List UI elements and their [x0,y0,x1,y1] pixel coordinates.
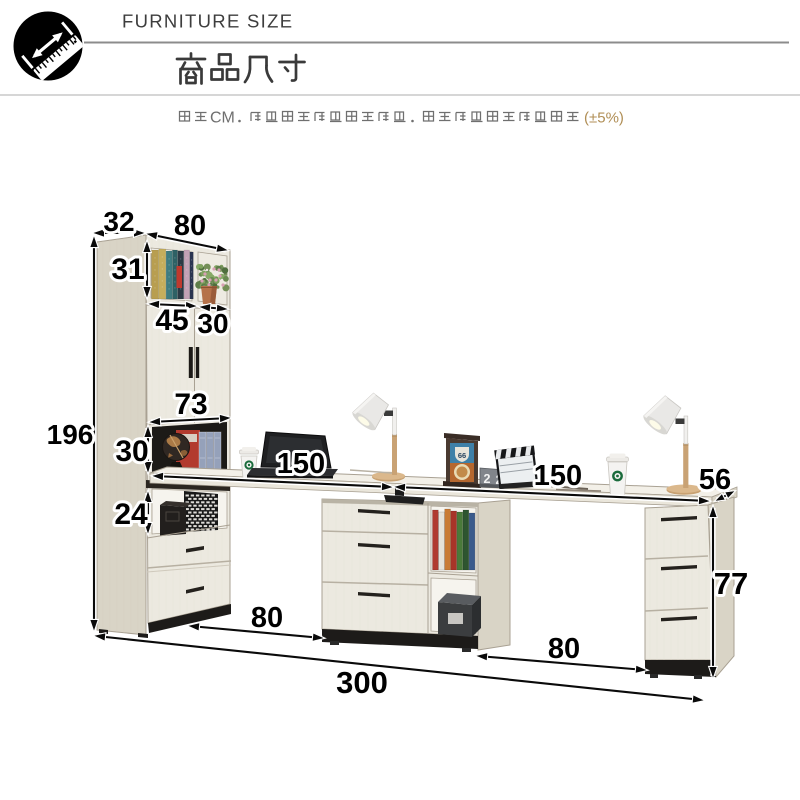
svg-text:(±5%): (±5%) [584,110,624,127]
svg-text:150: 150 [534,460,582,492]
svg-text:32: 32 [103,206,134,237]
svg-text:150: 150 [277,448,325,480]
svg-text:CM: CM [210,110,235,127]
svg-text:31: 31 [111,253,144,286]
svg-text:77: 77 [714,566,748,601]
svg-text:56: 56 [699,464,731,496]
svg-text:300: 300 [336,665,388,700]
svg-text:196: 196 [47,419,94,450]
svg-text:73: 73 [174,388,207,421]
svg-text:24: 24 [114,498,148,531]
svg-text:2: 2 [484,472,491,486]
svg-text:80: 80 [251,602,283,634]
svg-text:45: 45 [155,304,188,337]
svg-text:66: 66 [458,451,466,460]
svg-text:FURNITURE SIZE: FURNITURE SIZE [122,11,293,32]
svg-text:80: 80 [548,633,580,665]
svg-text:80: 80 [174,210,206,242]
svg-text:30: 30 [115,435,148,468]
svg-text:30: 30 [197,308,228,339]
